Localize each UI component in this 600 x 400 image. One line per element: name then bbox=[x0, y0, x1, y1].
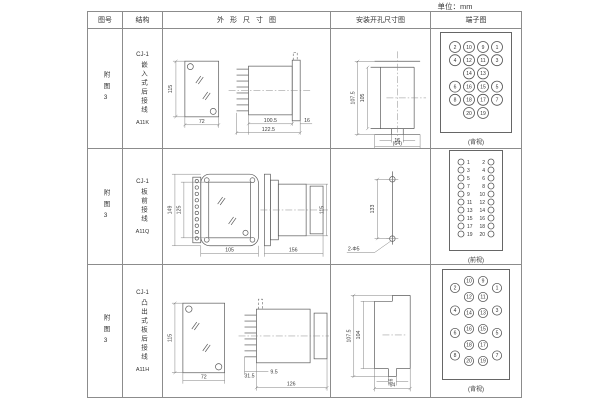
svg-text:10: 10 bbox=[466, 279, 472, 285]
dim-outer-height: 107.5 bbox=[346, 329, 352, 342]
header-outline-label: 外形尺寸图 bbox=[217, 15, 282, 25]
svg-text:14: 14 bbox=[479, 208, 485, 214]
svg-text:13: 13 bbox=[467, 208, 473, 214]
header-outline: 外形尺寸图 bbox=[163, 12, 331, 29]
svg-text:2: 2 bbox=[482, 160, 485, 166]
svg-text:5: 5 bbox=[496, 84, 499, 90]
svg-text:8: 8 bbox=[482, 184, 485, 190]
svg-text:13: 13 bbox=[480, 71, 486, 77]
fig-no-cell: 附图3 bbox=[88, 265, 123, 397]
mounting-svg-row2: 133 2-Φ5 bbox=[331, 149, 430, 265]
series-label: CJ-1 bbox=[136, 290, 149, 296]
terminal-view-label: (背视) bbox=[468, 137, 484, 146]
svg-text:14: 14 bbox=[466, 311, 472, 317]
svg-text:15: 15 bbox=[467, 216, 473, 222]
dim-front-height: 115 bbox=[168, 84, 174, 92]
dim-body-length: 100.5 bbox=[264, 118, 277, 124]
mounting-svg-row1: 107.5 105 16 (64) bbox=[331, 29, 430, 149]
outline-drawing: 115 72 100.5 16 122.5 bbox=[163, 29, 331, 149]
svg-text:16: 16 bbox=[466, 327, 472, 333]
svg-text:1: 1 bbox=[496, 44, 499, 50]
dim-front-outer-height: 149 bbox=[167, 205, 173, 214]
svg-text:19: 19 bbox=[480, 110, 486, 116]
svg-text:12: 12 bbox=[466, 58, 472, 64]
series-label: CJ-1 bbox=[136, 52, 149, 58]
header-mounting: 安装开孔尺寸图 bbox=[331, 12, 431, 29]
terminal-svg-row2: 1234567891011121314151617181920 bbox=[453, 154, 499, 242]
structure-cell: CJ-1 嵌入式后接线 A11K bbox=[123, 29, 163, 149]
dim-side-height: 115 bbox=[320, 205, 326, 213]
outline-svg-row3: 115 72 31.5 9.5 126 bbox=[163, 265, 330, 397]
dim-inner-height: 105 bbox=[360, 93, 366, 102]
svg-text:7: 7 bbox=[467, 184, 470, 190]
fig-no-text: 附图3 bbox=[100, 189, 110, 224]
terminal-svg-row1: 2468101214161820911131517191357 bbox=[444, 36, 508, 124]
terminal-cell: 2468101214161820911131517191357 (背视) bbox=[431, 265, 521, 397]
svg-text:13: 13 bbox=[480, 311, 486, 317]
svg-text:9: 9 bbox=[467, 192, 470, 198]
svg-text:4: 4 bbox=[454, 58, 457, 64]
dim-stud-length: 31.5 bbox=[244, 374, 254, 380]
terminal-diagram: 1234567891011121314151617181920 bbox=[449, 150, 503, 251]
fig-no-cell: 附图3 bbox=[88, 29, 123, 149]
dim-holes: 2-Φ5 bbox=[348, 246, 360, 252]
svg-text:16: 16 bbox=[479, 216, 485, 222]
dim-front-inner-height: 125 bbox=[176, 205, 182, 214]
svg-text:19: 19 bbox=[480, 359, 486, 365]
structure-cell: CJ-1 凸出式板后接线 A11H bbox=[123, 265, 163, 397]
svg-text:9: 9 bbox=[482, 44, 485, 50]
svg-text:5: 5 bbox=[496, 331, 499, 337]
fig-no-text: 附图3 bbox=[100, 314, 110, 349]
structure-text: 凸出式板后接线 bbox=[138, 299, 148, 362]
series-label: CJ-1 bbox=[136, 179, 149, 185]
svg-text:3: 3 bbox=[496, 58, 499, 64]
svg-text:7: 7 bbox=[496, 97, 499, 103]
spec-table: 图号 结构 外形尺寸图 安装开孔尺寸图 端子图 附图3 CJ-1 嵌入式后接线 … bbox=[87, 11, 522, 398]
outline-svg-row1: 115 72 100.5 16 122.5 bbox=[163, 29, 330, 149]
svg-text:19: 19 bbox=[467, 232, 473, 238]
svg-text:18: 18 bbox=[466, 343, 472, 349]
svg-text:6: 6 bbox=[482, 176, 485, 182]
svg-text:3: 3 bbox=[467, 168, 470, 174]
svg-text:7: 7 bbox=[496, 353, 499, 359]
terminal-view-label: (背视) bbox=[468, 384, 484, 393]
svg-text:20: 20 bbox=[466, 110, 472, 116]
svg-text:4: 4 bbox=[454, 308, 457, 314]
svg-text:8: 8 bbox=[454, 353, 457, 359]
svg-text:2: 2 bbox=[454, 44, 457, 50]
svg-text:17: 17 bbox=[480, 97, 486, 103]
svg-text:20: 20 bbox=[466, 359, 472, 365]
header-terminal: 端子图 bbox=[431, 12, 521, 29]
outline-drawing: 149 125 105 156 115 bbox=[163, 149, 331, 265]
terminal-svg-row3: 2468101214161820911131517191357 bbox=[446, 273, 506, 371]
header-fig-no: 图号 bbox=[88, 12, 123, 29]
svg-text:16: 16 bbox=[466, 84, 472, 90]
outline-drawing: 115 72 31.5 9.5 126 bbox=[163, 265, 331, 397]
svg-text:11: 11 bbox=[480, 58, 485, 64]
svg-text:18: 18 bbox=[466, 97, 472, 103]
svg-text:10: 10 bbox=[466, 44, 472, 50]
dim-inner-height: 104 bbox=[356, 331, 362, 340]
svg-text:1: 1 bbox=[496, 286, 499, 292]
dim-opening-width: (64) bbox=[393, 140, 403, 146]
mounting-drawing: 133 2-Φ5 bbox=[331, 149, 431, 265]
svg-text:18: 18 bbox=[479, 224, 485, 230]
terminal-cell: 2468101214161820911131517191357 (背视) bbox=[431, 29, 521, 149]
dim-front-height: 115 bbox=[167, 334, 173, 342]
outline-svg-row2: 149 125 105 156 115 bbox=[163, 149, 330, 265]
structure-cell: CJ-1 板前接线 A11Q bbox=[123, 149, 163, 265]
terminal-diagram: 2468101214161820911131517191357 bbox=[440, 32, 512, 133]
svg-text:15: 15 bbox=[480, 84, 486, 90]
dim-offset: 9.5 bbox=[270, 370, 277, 376]
terminal-cell: 1234567891011121314151617181920 (前视) bbox=[431, 149, 521, 265]
svg-text:17: 17 bbox=[467, 224, 473, 230]
mounting-drawing: 107.5 104 16 64 bbox=[331, 265, 431, 397]
dim-total-length: 122.5 bbox=[262, 126, 275, 132]
svg-text:20: 20 bbox=[479, 232, 485, 238]
dim-front-width: 105 bbox=[225, 247, 234, 253]
mounting-svg-row3: 107.5 104 16 64 bbox=[331, 265, 430, 397]
dim-front-width: 72 bbox=[201, 375, 207, 381]
svg-text:6: 6 bbox=[454, 84, 457, 90]
header-structure: 结构 bbox=[123, 12, 163, 29]
mounting-drawing: 107.5 105 16 (64) bbox=[331, 29, 431, 149]
dim-body-length: 126 bbox=[287, 382, 296, 388]
svg-text:1: 1 bbox=[467, 160, 470, 166]
dim-front-width: 72 bbox=[199, 118, 205, 124]
model-label: A11K bbox=[136, 120, 149, 126]
fig-no-cell: 附图3 bbox=[88, 149, 123, 265]
dim-opening-width: 64 bbox=[389, 383, 395, 389]
svg-text:11: 11 bbox=[467, 200, 472, 206]
structure-text: 板前接线 bbox=[138, 188, 148, 224]
svg-text:2: 2 bbox=[454, 286, 457, 292]
svg-text:6: 6 bbox=[454, 331, 457, 337]
terminal-diagram: 2468101214161820911131517191357 bbox=[442, 269, 510, 380]
dim-side-length: 156 bbox=[289, 247, 298, 253]
dim-flange-depth: 16 bbox=[304, 118, 310, 124]
terminal-view-label: (前视) bbox=[468, 255, 484, 264]
fig-no-text: 附图3 bbox=[100, 71, 110, 106]
svg-text:8: 8 bbox=[454, 97, 457, 103]
svg-text:11: 11 bbox=[480, 295, 485, 301]
svg-text:10: 10 bbox=[479, 192, 485, 198]
svg-text:15: 15 bbox=[480, 327, 486, 333]
dim-outer-height: 107.5 bbox=[350, 91, 356, 104]
svg-text:12: 12 bbox=[466, 295, 472, 301]
svg-text:14: 14 bbox=[466, 71, 472, 77]
dim-hole-spacing: 133 bbox=[370, 204, 376, 213]
svg-text:5: 5 bbox=[467, 176, 470, 182]
svg-text:4: 4 bbox=[482, 168, 485, 174]
svg-text:12: 12 bbox=[479, 200, 485, 206]
structure-text: 嵌入式后接线 bbox=[138, 61, 148, 115]
svg-text:3: 3 bbox=[496, 308, 499, 314]
model-label: A11Q bbox=[136, 229, 150, 235]
model-label: A11H bbox=[136, 367, 149, 373]
svg-text:17: 17 bbox=[480, 343, 486, 349]
svg-text:9: 9 bbox=[482, 279, 485, 285]
